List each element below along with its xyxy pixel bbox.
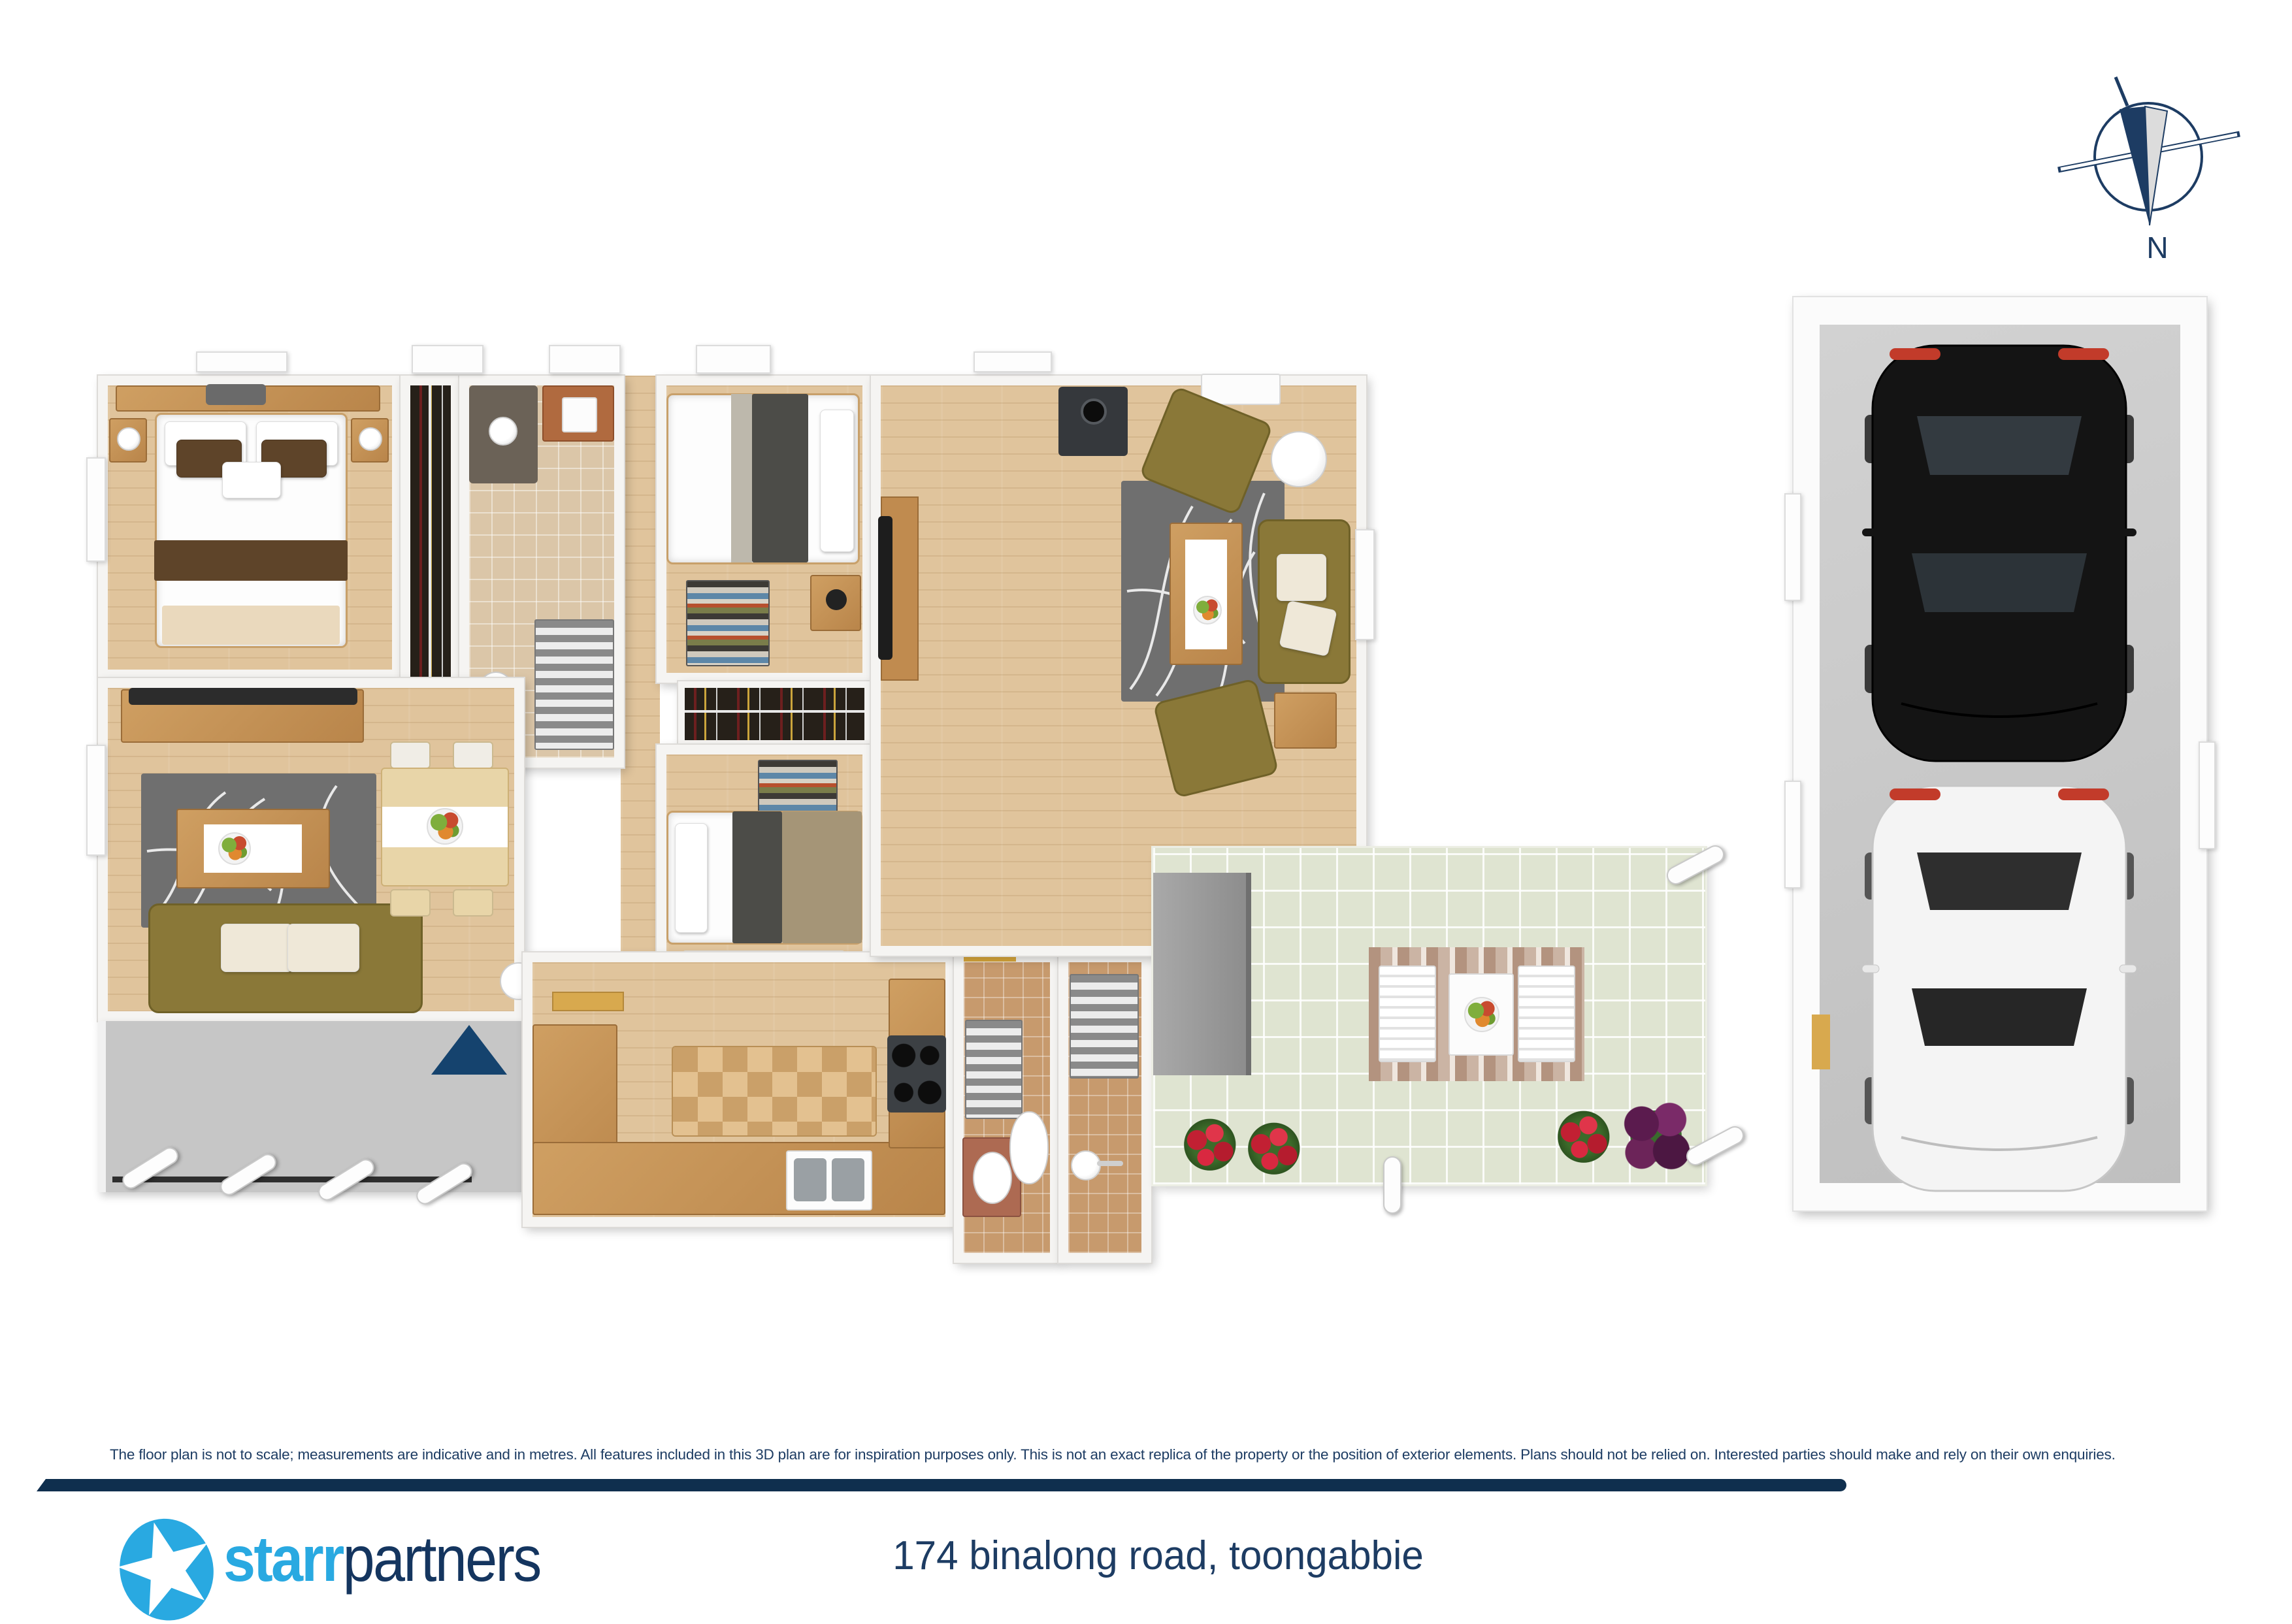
- window: [196, 351, 287, 372]
- bed-foot-blanket: [162, 606, 340, 645]
- car-white: [1862, 779, 2136, 1197]
- window: [412, 345, 483, 374]
- porch-post: [413, 1160, 475, 1208]
- table-decor: [1193, 596, 1222, 625]
- dining-table: [381, 768, 509, 886]
- logo-text: starrpartners: [223, 1522, 540, 1596]
- bed-bedroom2: [666, 393, 860, 564]
- bed-stripe: [752, 394, 808, 562]
- window: [1355, 529, 1375, 640]
- porch-post: [119, 1145, 181, 1192]
- front-door: [552, 992, 624, 1011]
- pillow: [222, 462, 281, 498]
- cushion: [221, 924, 293, 972]
- logo-text-starr: starr: [223, 1523, 343, 1595]
- tv: [206, 384, 266, 405]
- built-in-robe: [678, 681, 871, 747]
- desk-family: [121, 689, 364, 743]
- window: [696, 345, 771, 374]
- basin: [973, 1152, 1012, 1204]
- flower-pot: [1243, 1121, 1302, 1178]
- laundry-mat: [1070, 974, 1139, 1079]
- logo-star-icon: [111, 1513, 222, 1624]
- entry-arrow: [431, 1025, 507, 1075]
- flower-pot: [1612, 1095, 1697, 1177]
- kitchen-mat: [673, 1047, 876, 1135]
- patio-post: [1663, 842, 1727, 888]
- sink-basin: [832, 1158, 864, 1201]
- tv-unit: [881, 496, 919, 681]
- basin: [562, 397, 597, 432]
- cushion: [287, 924, 359, 972]
- car-black: [1862, 338, 2136, 769]
- window: [974, 351, 1052, 372]
- disclaimer: The floor plan is not to scale; measurem…: [110, 1446, 2285, 1463]
- desk-chair: [826, 589, 847, 610]
- toilet: [1009, 1111, 1049, 1184]
- table-runner: [1185, 540, 1227, 649]
- room-master-bedroom: [98, 376, 402, 679]
- fruit-bowl: [427, 808, 463, 845]
- floor-plan: N: [0, 0, 2292, 1620]
- logo-text-partners: partners: [343, 1523, 540, 1595]
- north-label: N: [2131, 230, 2184, 265]
- porch-post: [217, 1151, 279, 1199]
- side-table-round: [1271, 431, 1327, 487]
- outdoor-chair: [1379, 966, 1436, 1062]
- rug-bedroom2: [686, 580, 770, 666]
- robe-rail: [685, 710, 864, 713]
- fruit-bowl: [1464, 997, 1499, 1032]
- room-laundry: [1058, 952, 1151, 1263]
- bath-mat: [534, 619, 614, 750]
- pillow: [820, 410, 854, 552]
- garage-door: [1784, 781, 1801, 888]
- bed-stripe: [731, 394, 752, 562]
- dining-chair: [390, 741, 431, 769]
- dining-chair: [453, 889, 493, 917]
- coffee-table-family: [176, 809, 330, 888]
- cushion: [1279, 600, 1337, 657]
- bed-stripe: [732, 811, 782, 943]
- compass-icon: [2052, 59, 2248, 235]
- garage-door: [1784, 493, 1801, 601]
- porch-edge: [112, 1177, 472, 1182]
- laundry-tub: [1071, 1150, 1101, 1180]
- footer-bar: [46, 1479, 1846, 1491]
- bed-blanket: [782, 811, 862, 943]
- brand-logo: starrpartners: [111, 1513, 699, 1624]
- kitchen-sink: [786, 1150, 872, 1210]
- tv: [878, 516, 892, 660]
- sofa-family: [148, 903, 423, 1013]
- robe-rail: [429, 385, 431, 728]
- coffee-table-living: [1170, 523, 1243, 665]
- bbq: [1153, 873, 1251, 1075]
- kitchen-counter: [532, 1142, 945, 1215]
- dining-chair: [453, 741, 493, 769]
- window: [86, 745, 106, 856]
- flue: [1081, 398, 1107, 425]
- fireplace: [1058, 387, 1128, 456]
- room-bathroom: [954, 952, 1060, 1263]
- shower-head: [489, 417, 517, 446]
- garage: [1793, 297, 2206, 1210]
- shower: [469, 385, 538, 483]
- patio-post: [1383, 1156, 1401, 1214]
- desk-top: [129, 688, 357, 705]
- patio: [1153, 848, 1705, 1184]
- bedside-lamp: [117, 427, 140, 451]
- window: [549, 345, 621, 374]
- bed-runner: [154, 540, 348, 581]
- stove: [887, 1035, 946, 1112]
- bedside-lamp: [359, 427, 382, 451]
- bed-bedroom3: [666, 811, 862, 945]
- cushion: [1277, 554, 1326, 601]
- property-address: 174 binalong road, toongabbie: [732, 1533, 1584, 1579]
- flower-pot: [1179, 1117, 1238, 1175]
- outdoor-table: [1449, 973, 1514, 1056]
- bath-mat: [965, 1020, 1023, 1119]
- bed-master: [155, 413, 348, 648]
- pillow: [675, 823, 708, 933]
- sink-basin: [794, 1158, 827, 1201]
- porch: [98, 1021, 523, 1192]
- vanity: [542, 385, 614, 442]
- outdoor-chair: [1518, 966, 1575, 1062]
- flower-pot: [1553, 1109, 1612, 1167]
- room-family: [98, 678, 524, 1021]
- dining-chair: [390, 889, 431, 917]
- garage-threshold: [1812, 1015, 1830, 1069]
- sofa-living: [1258, 519, 1351, 684]
- table-decor: [218, 832, 251, 865]
- room-kitchen: [523, 952, 955, 1227]
- tap: [1097, 1161, 1123, 1166]
- garage-door: [2199, 741, 2216, 849]
- magazine-table: [1274, 692, 1337, 749]
- window: [86, 457, 106, 562]
- room-bedroom2: [657, 376, 872, 683]
